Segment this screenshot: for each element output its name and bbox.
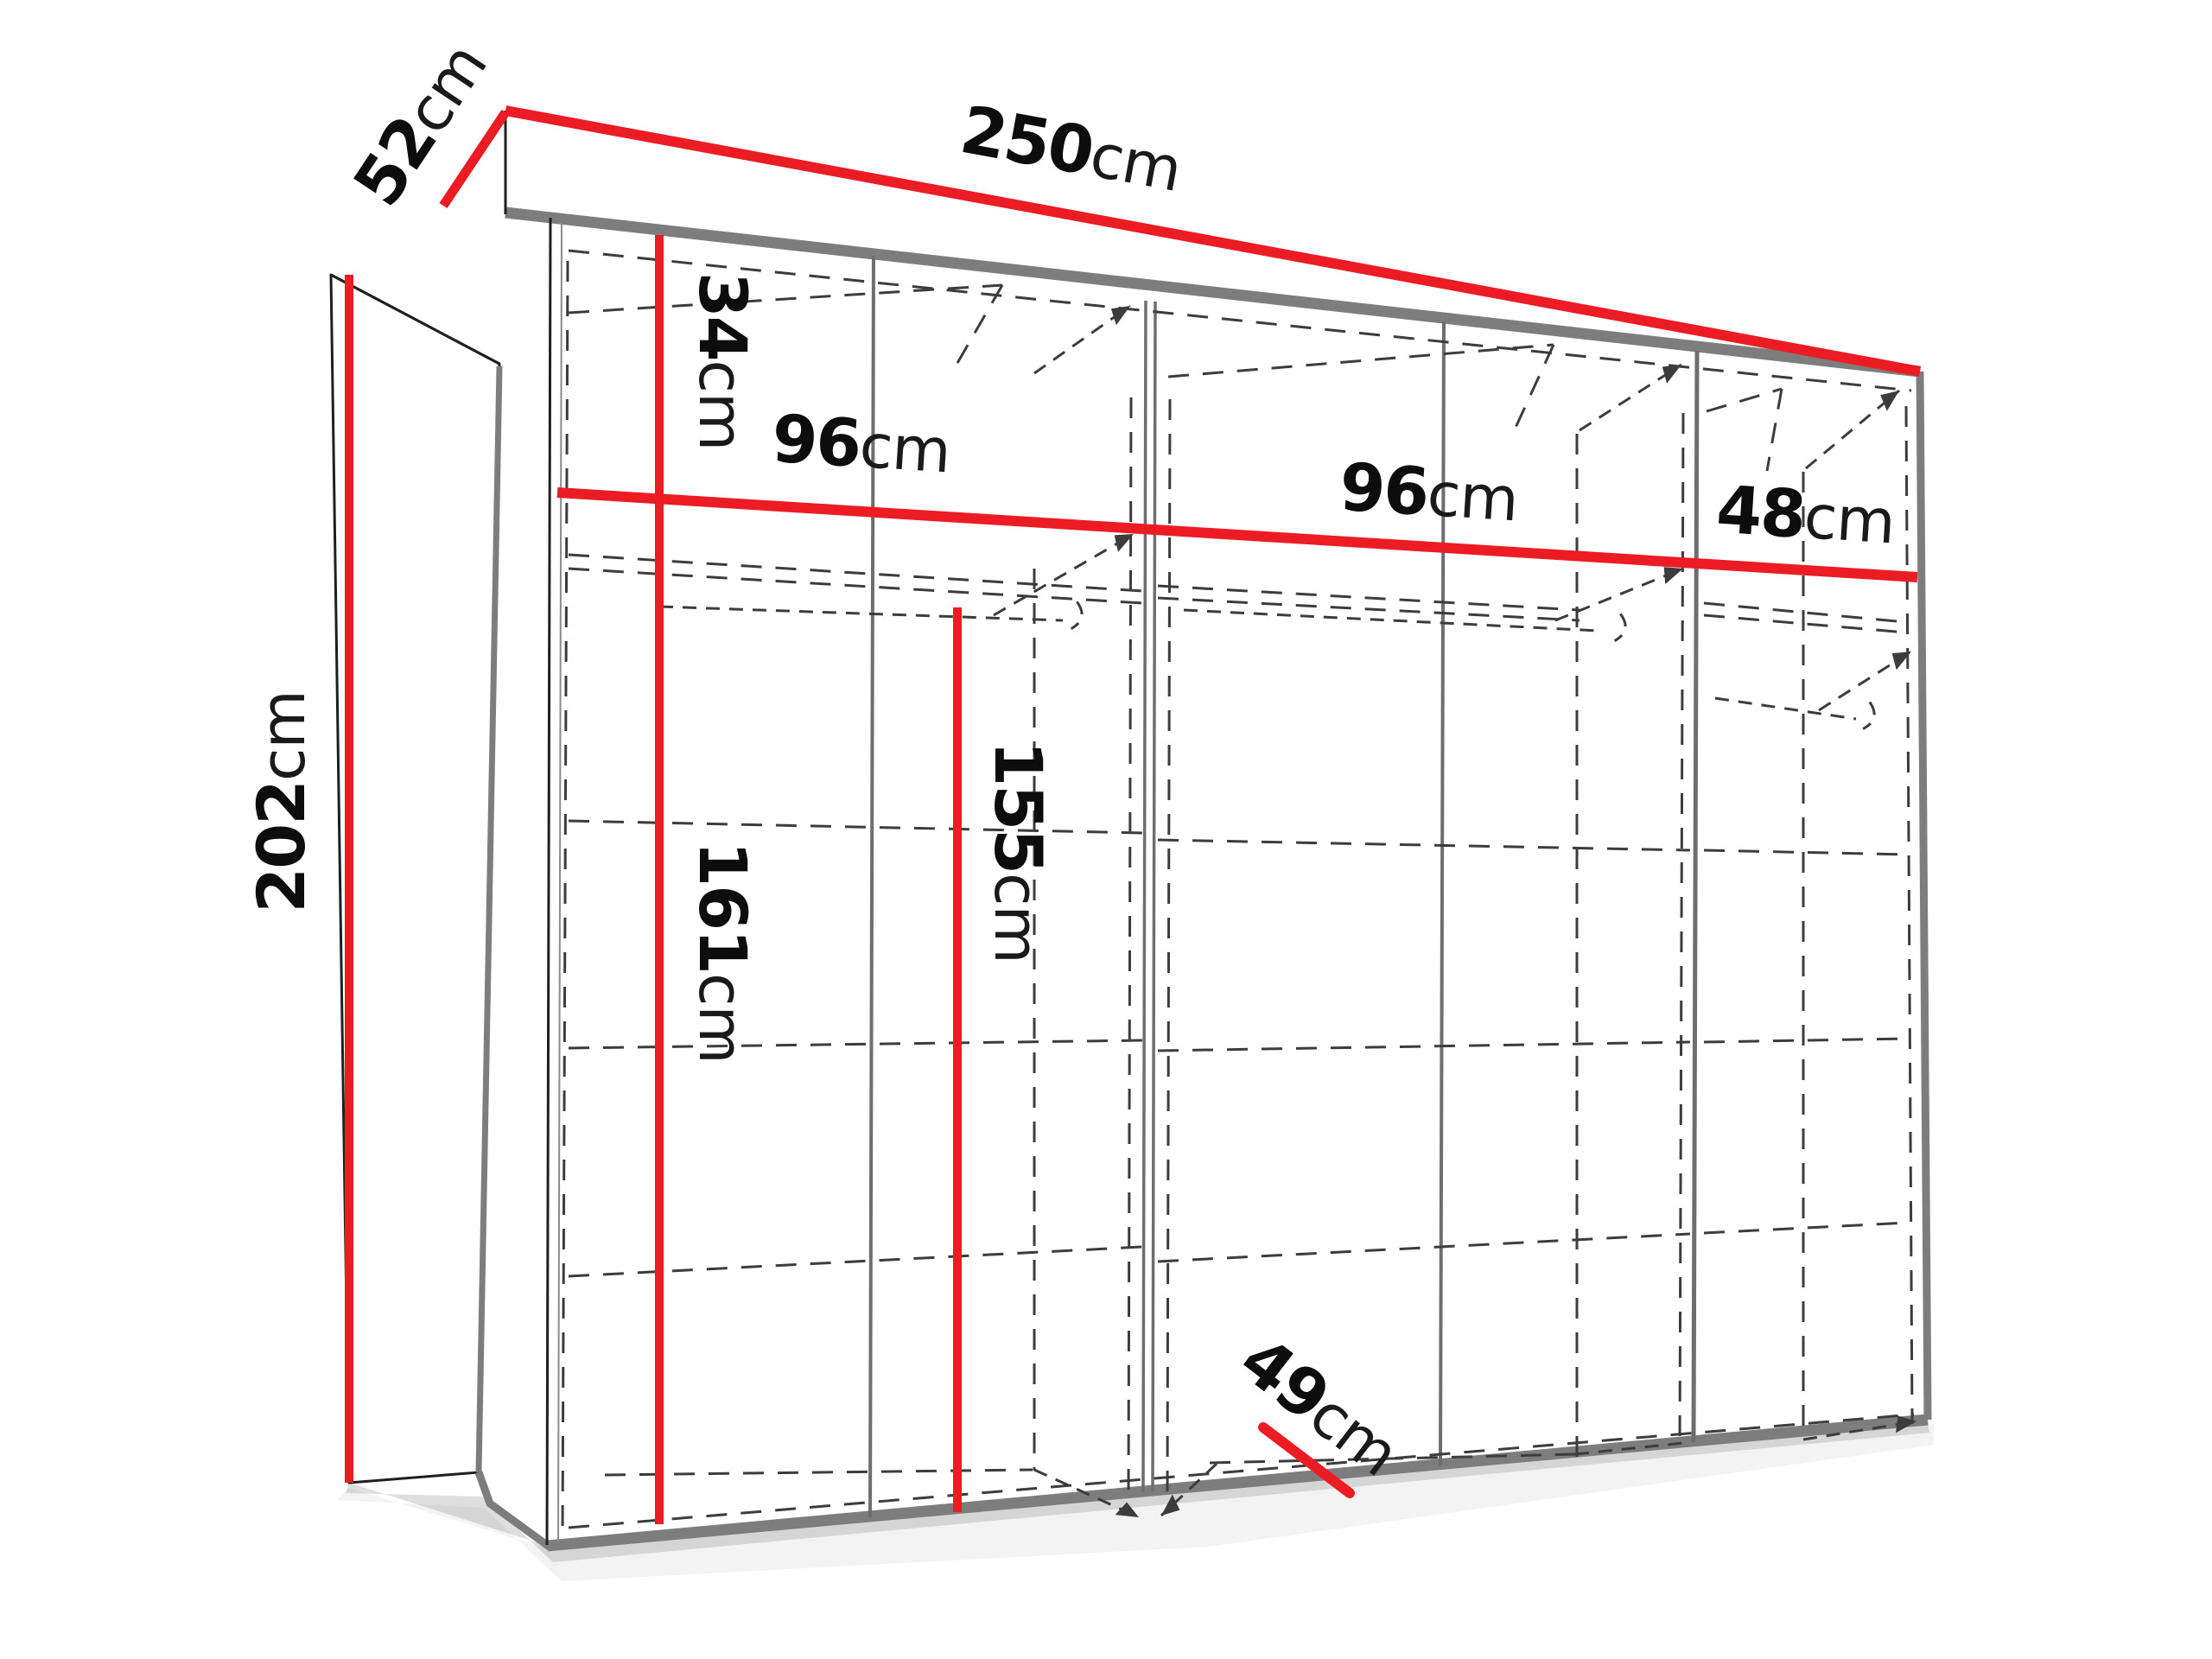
label-lower-left-interior-height: 161cm <box>684 841 761 1063</box>
diagram-canvas: 250cm 52cm 202cm 34cm 96cm 96cm 48cm 161… <box>0 0 2212 1659</box>
left-side-panel <box>331 275 499 1483</box>
label-total-height: 202cm <box>243 690 320 912</box>
label-side-depth: 52cm <box>339 29 502 219</box>
wardrobe-dimension-diagram: 250cm 52cm 202cm 34cm 96cm 96cm 48cm 161… <box>0 0 2212 1659</box>
label-total-width: 250cm <box>955 91 1187 207</box>
label-hanging-space-height: 155cm <box>980 741 1057 963</box>
label-top-compartment-height: 34cm <box>684 272 761 450</box>
